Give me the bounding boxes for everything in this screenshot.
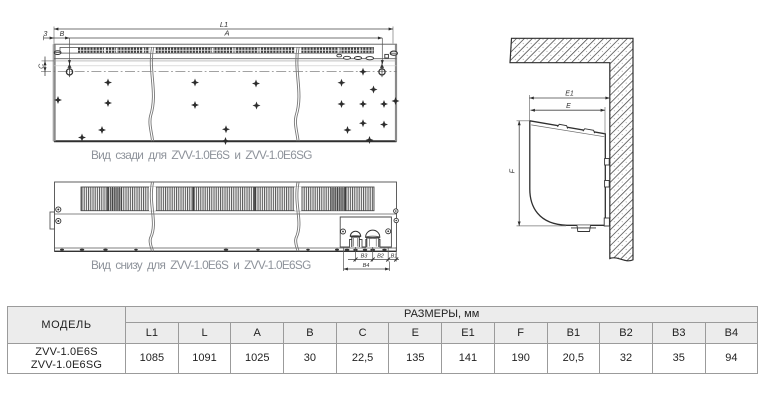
svg-text:В1: В1 (391, 254, 398, 260)
svg-text:В4: В4 (363, 263, 370, 269)
svg-text:F: F (510, 168, 517, 173)
svg-text:E: E (566, 103, 571, 110)
svg-text:E1: E1 (565, 91, 574, 98)
svg-text:3: 3 (44, 31, 48, 38)
svg-text:В: В (60, 31, 65, 38)
svg-text:В2: В2 (377, 254, 385, 260)
svg-text:В3: В3 (361, 254, 369, 260)
svg-text:A: A (223, 29, 229, 38)
